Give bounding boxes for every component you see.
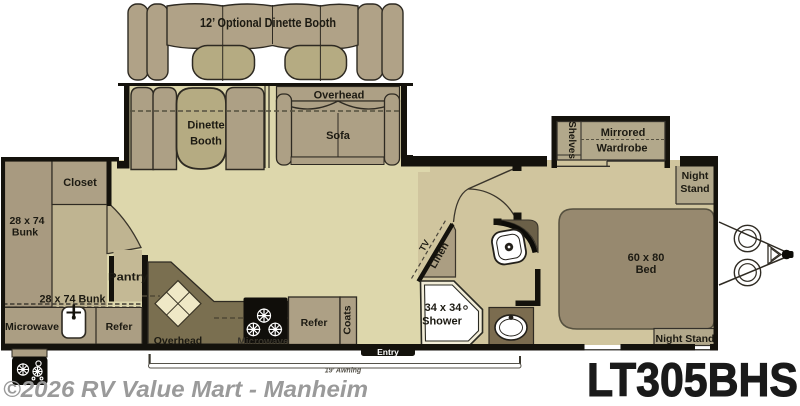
svg-text:Stand: Stand — [680, 183, 709, 195]
svg-text:Mirrored: Mirrored — [601, 127, 646, 139]
svg-text:19' Awning: 19' Awning — [325, 368, 362, 375]
svg-text:Bunk: Bunk — [12, 227, 38, 239]
svg-text:©2026 RV Value Mart - Manheim: ©2026 RV Value Mart - Manheim — [3, 376, 368, 402]
svg-text:Refer: Refer — [301, 317, 328, 329]
svg-text:Night: Night — [682, 170, 709, 182]
svg-text:Dinette: Dinette — [187, 120, 224, 132]
svg-text:Bed: Bed — [636, 264, 657, 276]
svg-text:Pantry: Pantry — [108, 272, 149, 284]
svg-text:Shelves: Shelves — [566, 121, 577, 159]
svg-text:34 x 34: 34 x 34 — [425, 302, 463, 314]
svg-text:Refer: Refer — [106, 321, 133, 333]
svg-text:Closet: Closet — [63, 177, 97, 189]
svg-text:Overhead: Overhead — [314, 90, 365, 102]
svg-text:28 x 74 Bunk: 28 x 74 Bunk — [40, 294, 107, 306]
svg-text:60 x 80: 60 x 80 — [628, 252, 665, 264]
svg-text:Shower: Shower — [422, 316, 462, 328]
svg-text:Entry: Entry — [377, 347, 399, 357]
svg-text:Microwave: Microwave — [5, 322, 59, 333]
svg-text:Booth: Booth — [190, 136, 222, 148]
svg-text:LT305BHS: LT305BHS — [587, 353, 798, 406]
svg-text:Wardrobe: Wardrobe — [597, 143, 648, 155]
svg-text:Coats: Coats — [342, 305, 354, 334]
svg-text:12’ Optional Dinette Booth: 12’ Optional Dinette Booth — [200, 16, 336, 30]
svg-text:Sofa: Sofa — [326, 130, 351, 142]
svg-text:Night Stand: Night Stand — [656, 333, 715, 345]
svg-text:28 x 74: 28 x 74 — [9, 215, 44, 227]
